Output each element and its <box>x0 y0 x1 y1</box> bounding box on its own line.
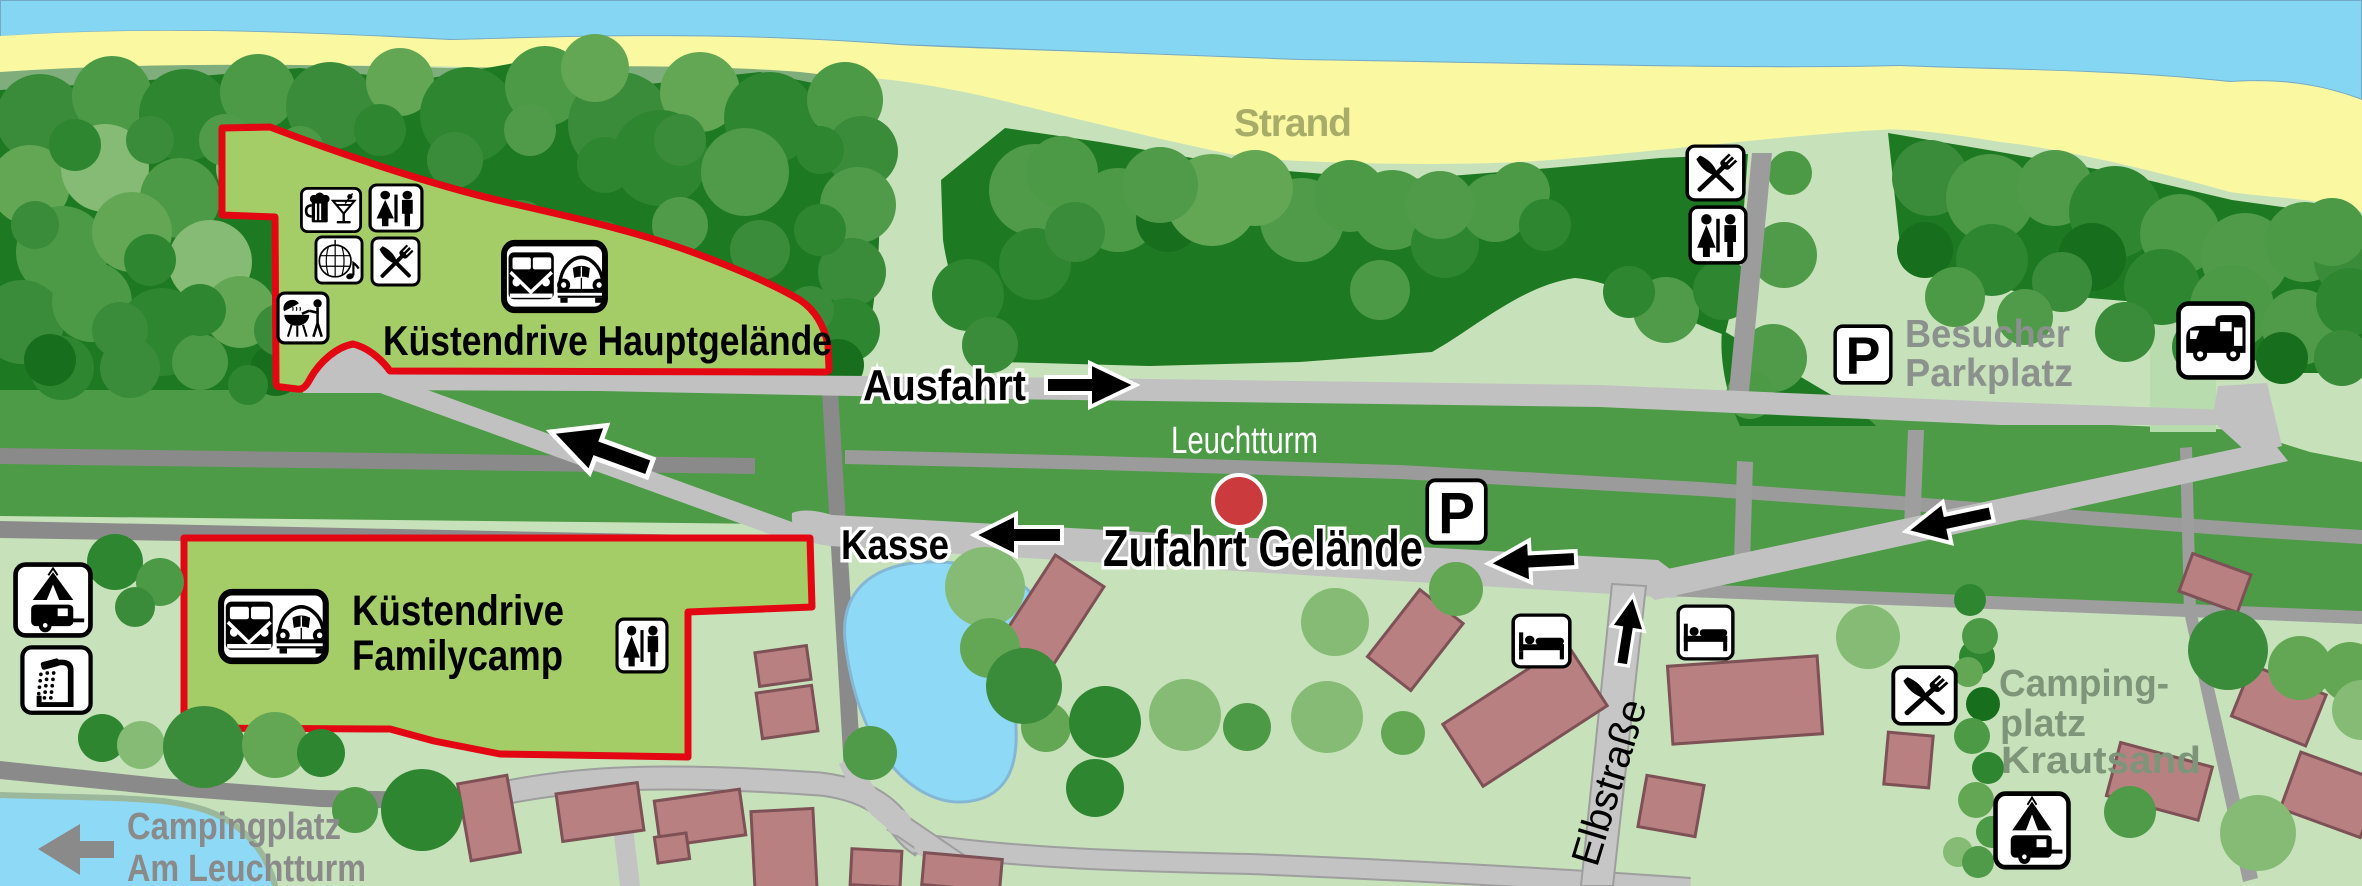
svg-text:Zufahrt Gelände: Zufahrt Gelände <box>1103 520 1423 578</box>
svg-text:Strand: Strand <box>1234 102 1352 145</box>
svg-text:platz: platz <box>2000 703 2086 745</box>
svg-text:Krautsand: Krautsand <box>2001 740 2201 782</box>
svg-text:Leuchtturm: Leuchtturm <box>1171 420 1318 462</box>
svg-text:Am Leuchtturm: Am Leuchtturm <box>127 848 366 886</box>
svg-text:Parkplatz: Parkplatz <box>1905 352 2073 395</box>
svg-text:Ausfahrt: Ausfahrt <box>863 361 1026 410</box>
svg-text:Camping-: Camping- <box>1999 663 2169 705</box>
svg-text:Küstendrive Hauptgelände: Küstendrive Hauptgelände <box>383 317 832 364</box>
svg-text:Küstendrive: Küstendrive <box>352 587 564 635</box>
svg-text:Familycamp: Familycamp <box>352 632 563 680</box>
svg-text:Campingplatz: Campingplatz <box>127 806 341 848</box>
svg-text:Besucher: Besucher <box>1905 313 2070 356</box>
svg-text:Kasse: Kasse <box>841 521 949 568</box>
